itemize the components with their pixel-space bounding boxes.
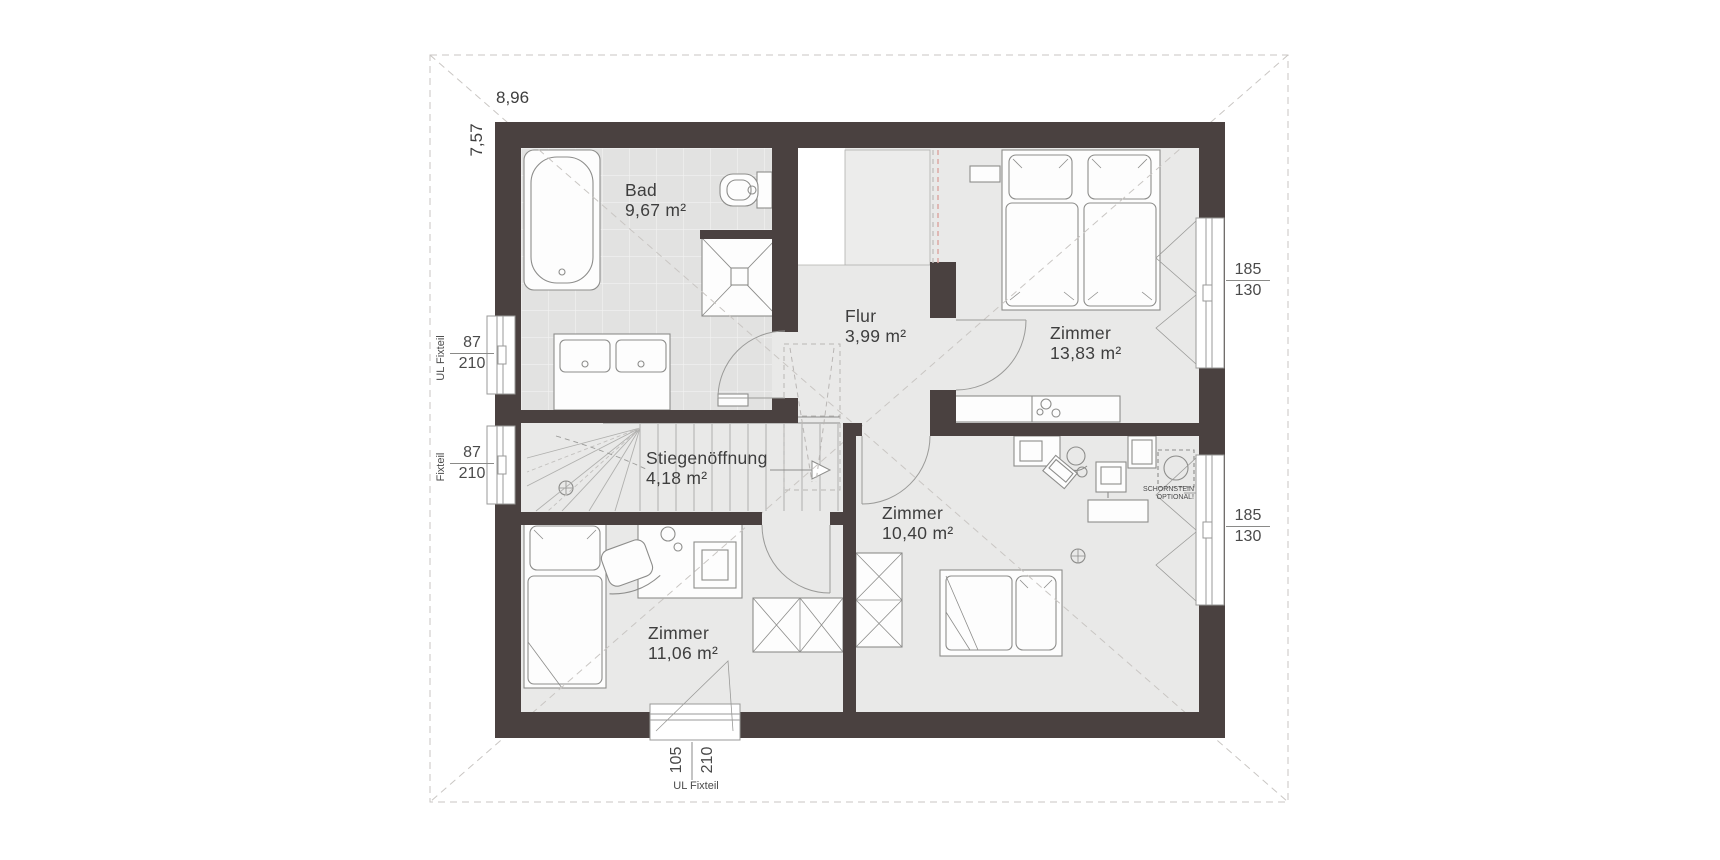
single-bed-left (524, 520, 606, 688)
room-area: 13,83 m² (1050, 343, 1121, 363)
window-type-bottom: UL Fixteil (658, 780, 734, 792)
vanity-double-sink (554, 334, 670, 410)
room-area: 3,99 m² (845, 326, 906, 346)
nightstand (970, 166, 1000, 182)
room-label-bad: Bad 9,67 m² (625, 180, 686, 220)
double-bed (1002, 150, 1160, 310)
room-name: Zimmer (648, 623, 718, 643)
window-type-left-bottom: Fixteil (435, 453, 447, 482)
window-dim-right-top: 185 130 (1226, 260, 1270, 301)
window-height: 130 (1226, 280, 1270, 301)
window-width: 185 (1226, 260, 1270, 280)
room-label-flur: Flur 3,99 m² (845, 306, 906, 346)
single-bed-right (940, 570, 1062, 656)
room-area: 11,06 m² (648, 643, 718, 663)
window-dim-left-top: 87 210 (450, 333, 494, 374)
window-width-bottom: 105 (668, 747, 686, 774)
window-width: 87 (450, 443, 494, 463)
room-label-zimmer-11: Zimmer 11,06 m² (648, 623, 718, 663)
stairwell-void (798, 148, 845, 265)
window-height: 210 (450, 353, 494, 374)
room-name: Flur (845, 306, 906, 326)
stair-landing (845, 150, 930, 265)
room-name: Stiegenöffnung (646, 448, 768, 468)
chimney-note: SCHORNSTEIN OPTIONAL! (1138, 486, 1194, 501)
window-dim-left-bottom: 87 210 (450, 443, 494, 484)
room-area: 4,18 m² (646, 468, 768, 488)
window-height: 130 (1226, 526, 1270, 547)
room-label-zimmer-13: Zimmer 13,83 m² (1050, 323, 1121, 363)
room-area: 9,67 m² (625, 200, 686, 220)
floorplan-page: 8,96 7,57 Bad 9,67 m² Flur 3,99 m² Zimme… (0, 0, 1720, 860)
room-name: Bad (625, 180, 686, 200)
wardrobe-right-room (856, 553, 902, 647)
window-height: 210 (450, 463, 494, 484)
floorplan-drawing (0, 0, 1720, 860)
room-name: Zimmer (882, 503, 953, 523)
room-area: 10,40 m² (882, 523, 953, 543)
sideboard (943, 396, 1120, 422)
room-label-zimmer-10: Zimmer 10,40 m² (882, 503, 953, 543)
ceiling-symbol-right (1071, 549, 1085, 563)
window-dim-right-bottom: 185 130 (1226, 506, 1270, 547)
bathtub (524, 150, 600, 290)
toilet (720, 172, 772, 208)
radiator (718, 394, 748, 406)
window-type-left-top: UL Fixteil (435, 335, 447, 380)
wardrobe-bottom-center (753, 598, 843, 652)
window-width: 185 (1226, 506, 1270, 526)
dresser (1088, 500, 1148, 522)
shower (702, 238, 777, 316)
room-label-stiegenoeffnung: Stiegenöffnung 4,18 m² (646, 448, 768, 488)
overall-width-dim: 8,96 (496, 88, 529, 108)
window-width: 87 (450, 333, 494, 353)
overall-height-dim: 7,57 (467, 123, 487, 156)
window-height-bottom: 210 (699, 747, 717, 774)
room-name: Zimmer (1050, 323, 1121, 343)
